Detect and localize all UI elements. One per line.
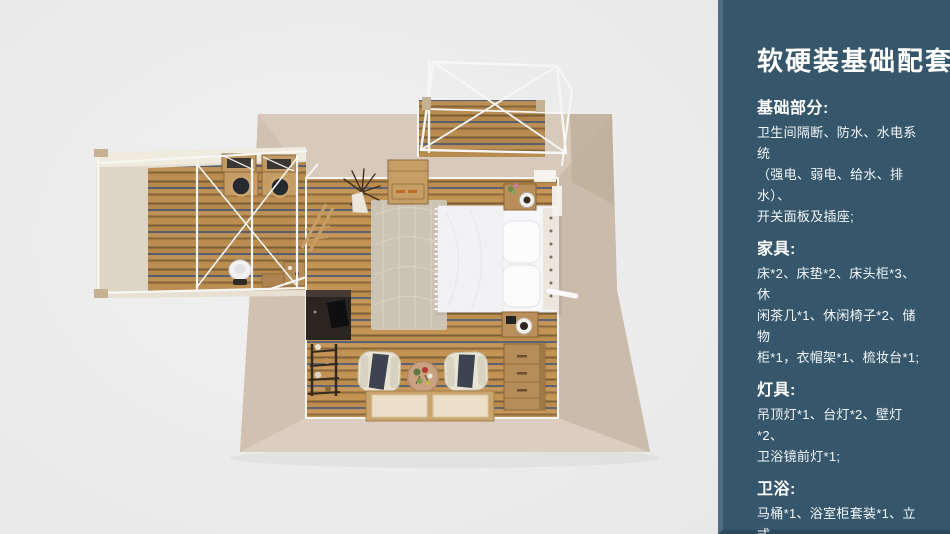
pillow <box>503 221 540 263</box>
dressing-panel <box>552 186 562 216</box>
bed <box>436 205 562 315</box>
pillow <box>503 265 540 307</box>
slide: 软硬装基础配套 基础部分: 卫生间隔断、防水、水电系统 （强电、弱电、给水、排水… <box>0 0 950 534</box>
frame-cap <box>94 289 108 298</box>
armchair-left <box>358 351 401 392</box>
section-heading: 灯具: <box>757 380 924 402</box>
storage-dresser <box>504 344 545 410</box>
wardrobe <box>388 160 428 204</box>
section-basics: 基础部分: 卫生间隔断、防水、水电系统 （强电、弱电、给水、排水）、 开关面板及… <box>757 98 924 227</box>
section-body: 卫生间隔断、防水、水电系统 （强电、弱电、给水、排水）、 开关面板及插座; <box>757 122 924 227</box>
armchair-right <box>444 351 488 390</box>
sidebar-title: 软硬装基础配套 <box>757 44 924 78</box>
frame-bracket <box>422 97 431 110</box>
section-body: 吊顶灯*1、台灯*2、壁灯*2、 卫浴镜前灯*1; <box>757 404 924 467</box>
section-bathroom: 卫浴: 马桶*1、浴室柜套装*1、立式 花洒*1; <box>757 479 924 534</box>
section-furniture: 家具: 床*2、床垫*2、床头柜*3、休 闲茶几*1、休闲椅子*2、储物 柜*1… <box>757 239 924 368</box>
floor-mats <box>366 391 494 421</box>
section-lighting: 灯具: 吊顶灯*1、台灯*2、壁灯*2、 卫浴镜前灯*1; <box>757 380 924 467</box>
coffee-table <box>408 362 439 393</box>
section-body: 马桶*1、浴室柜套装*1、立式 花洒*1; <box>757 503 924 534</box>
shower-area <box>100 167 148 291</box>
section-heading: 卫浴: <box>757 479 924 501</box>
info-sidebar: 软硬装基础配套 基础部分: 卫生间隔断、防水、水电系统 （强电、弱电、给水、排水… <box>718 0 950 534</box>
frame-cap <box>94 149 108 157</box>
nightstand-bottom <box>502 312 538 337</box>
desk <box>306 290 351 340</box>
section-heading: 家具: <box>757 239 924 261</box>
section-body: 床*2、床垫*2、床头柜*3、休 闲茶几*1、休闲椅子*2、储物 柜*1，衣帽架… <box>757 263 924 368</box>
nightstand-top <box>504 184 536 211</box>
frame-bracket <box>536 100 545 112</box>
section-heading: 基础部分: <box>757 98 924 120</box>
bathroom-wing <box>94 147 322 298</box>
floorplan-svg <box>0 0 718 534</box>
wall-shelf <box>534 170 556 182</box>
floorplan-render <box>0 0 718 534</box>
